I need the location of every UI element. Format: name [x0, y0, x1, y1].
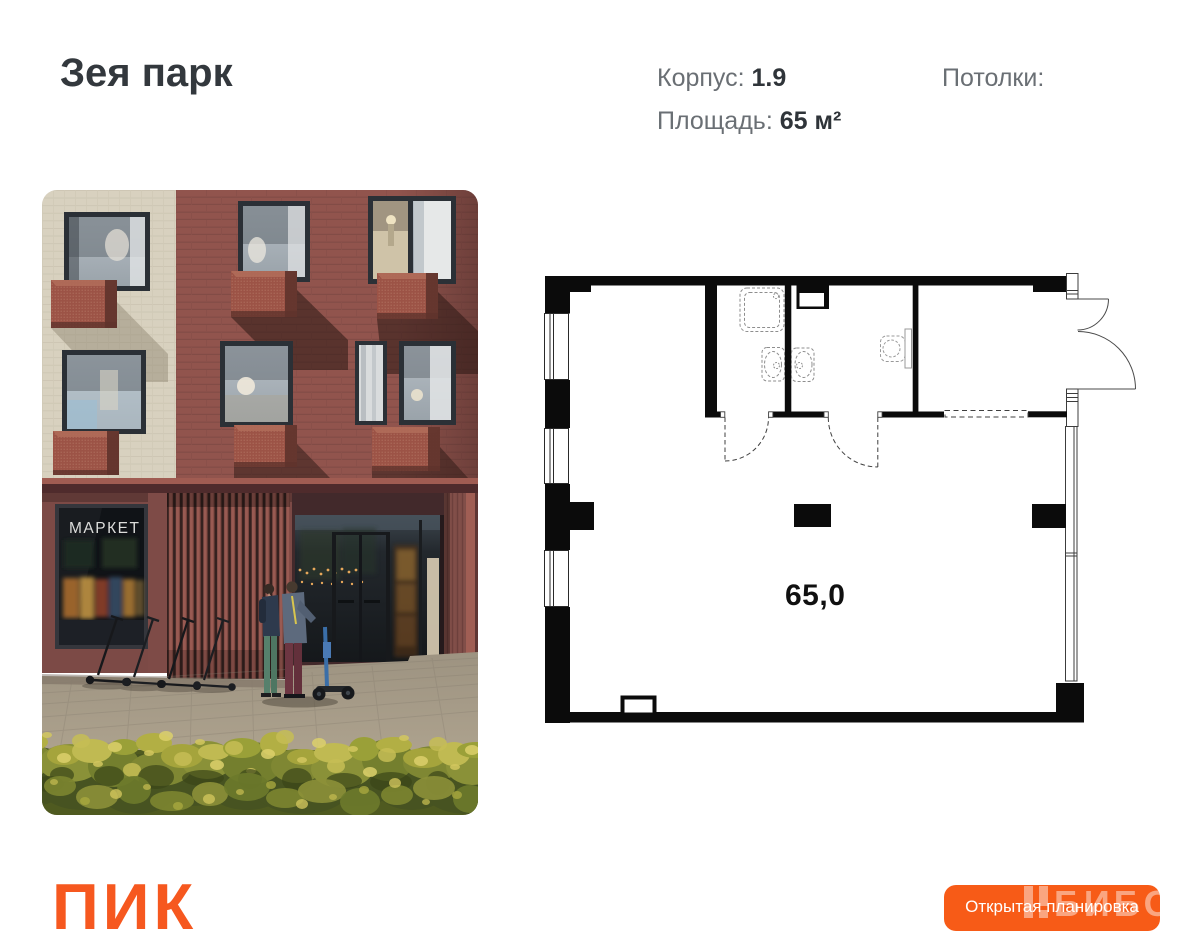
- svg-text:65,0: 65,0: [785, 579, 845, 612]
- svg-text:МАРКЕТ: МАРКЕТ: [69, 520, 140, 537]
- svg-text:БИБОС: БИБОС: [1054, 884, 1200, 920]
